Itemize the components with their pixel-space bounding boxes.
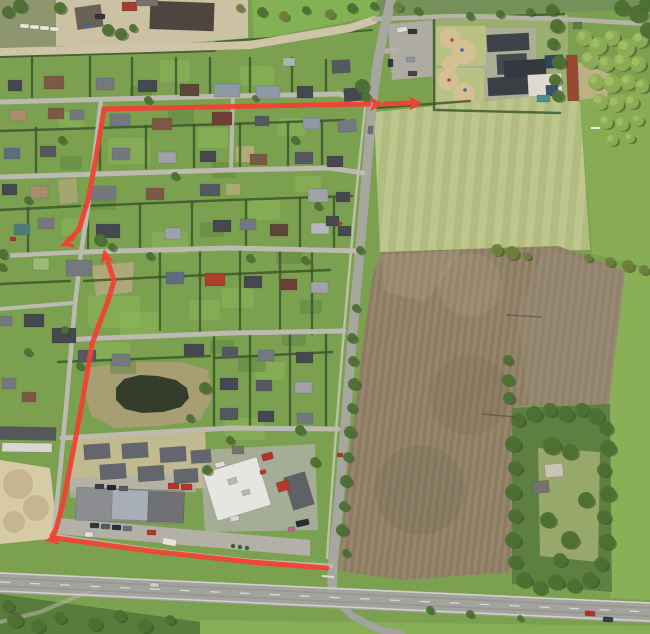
tree [138,619,152,633]
dealership-showroom [111,489,148,520]
tree [597,463,611,477]
school-sports-field [374,94,590,252]
tree [54,2,66,14]
sand-pile-2 [23,495,49,521]
bush [238,545,242,549]
house [311,282,328,293]
aerial-map-canvas [0,0,650,634]
sand-pile-3 [3,511,25,533]
tree [279,11,289,21]
vehicle [585,611,595,617]
tree [505,484,521,500]
tree [252,95,258,101]
dealership-dark-wing [147,491,184,522]
tree [24,348,32,356]
tree [505,532,521,548]
vehicle [40,26,49,30]
tree-highlight [607,135,613,141]
tree [325,9,335,19]
house [220,378,238,390]
tree-highlight [615,55,624,64]
house [24,314,44,327]
tree [347,403,357,413]
tree [597,510,611,524]
tree [540,512,556,528]
tree [393,2,403,12]
tree [361,92,371,102]
play-equipment [447,78,451,82]
tree [165,615,175,625]
farm-red-building [122,2,137,11]
house [256,380,272,391]
tree [426,606,434,614]
house [40,146,56,157]
tree [344,426,356,438]
house [297,86,313,98]
tree [2,600,14,612]
school-building-4 [488,76,529,96]
tree [548,574,564,590]
house [295,152,313,164]
tree [342,549,350,557]
play-equipment [460,48,464,52]
house [2,184,17,195]
tree [526,406,542,422]
house [296,352,313,363]
tree [546,4,558,16]
tree [336,524,348,536]
cabin [84,443,111,460]
house [327,156,343,167]
tree-highlight [583,53,592,62]
vehicle [95,14,105,19]
vehicle [119,486,128,491]
house [166,272,184,284]
tree [301,256,309,264]
lawn-patch [240,66,274,86]
house [152,118,172,130]
tree [549,74,561,86]
tree [562,444,578,460]
tree [639,265,649,275]
goal-posts [591,127,600,129]
tree-highlight [633,115,639,121]
tree [355,79,369,93]
vehicle [50,27,59,31]
tree-highlight [605,77,614,86]
tree [129,24,137,32]
tree [582,572,598,588]
bush [245,546,249,550]
tree [466,12,474,20]
house [44,76,64,89]
tree [502,374,514,386]
barn-large [150,1,215,31]
house [213,220,231,232]
vehicle [107,485,116,490]
tree [561,531,579,549]
house [336,192,350,202]
house [146,188,164,200]
tree [505,436,521,452]
house [258,411,274,422]
lawn-patch [120,312,162,336]
house [8,80,22,91]
tree [599,421,613,435]
tree [343,452,353,462]
warehouse-light [2,443,52,453]
tree [246,254,254,262]
house [4,148,20,159]
cabin [174,468,199,484]
tree [146,252,154,260]
house [308,189,328,202]
house [165,228,181,239]
tree [508,461,522,475]
warehouse-dark [0,427,56,441]
house [2,378,16,389]
house [297,413,313,424]
farm-shed [136,0,158,6]
house [281,279,297,290]
tree [552,90,564,102]
lawn-patch [60,156,82,170]
tree [543,437,561,455]
tree-highlight [626,96,633,103]
cabin [191,449,212,463]
tree [102,24,114,36]
house-red-roof [205,273,225,286]
house [22,392,36,402]
tree [491,244,503,256]
tree [186,414,194,422]
route-school-entry [385,103,410,104]
house [30,186,48,198]
house [250,154,267,165]
tree [503,355,513,365]
tree [370,2,378,10]
tree [523,252,531,260]
vehicle [603,617,613,623]
tree [348,378,360,390]
school-building-1 [487,33,530,52]
tree [339,501,349,511]
tree [584,254,592,262]
tree [2,6,14,18]
vehicle [112,525,121,530]
house [200,184,220,196]
vehicle [337,222,342,225]
tree [543,403,557,417]
tree [508,509,522,523]
vehicle [388,59,393,67]
tree [599,534,615,550]
vehicle [95,484,104,489]
tree [552,55,566,69]
house [256,86,280,99]
tree [257,7,267,17]
tree [236,4,244,12]
tree [291,136,299,144]
house [214,84,240,97]
tree [547,38,559,50]
tree [314,202,322,210]
tree [575,403,589,417]
tree-highlight [616,118,623,125]
vehicle [101,524,110,529]
tree [600,440,616,456]
tree [58,136,66,144]
house [38,218,54,229]
house [332,60,351,74]
school-green-shed [573,22,582,29]
vehicle [168,483,179,489]
sand-pile-1 [3,469,33,499]
tree [340,475,352,487]
vehicle [408,71,417,76]
lawn-patch [198,128,228,148]
house [184,344,204,356]
house [66,260,92,276]
tree [505,246,519,260]
house [70,110,84,120]
garden-dirt-2 [226,184,240,195]
cabin [100,463,127,480]
house [222,347,238,358]
parcel-building-1 [544,463,563,478]
tree [558,406,574,422]
tree [600,486,616,502]
cabin [122,442,149,459]
tree [144,96,152,104]
house [258,350,274,361]
tree [171,172,179,180]
tree [76,362,84,370]
tree [516,572,532,588]
vehicle [123,526,132,531]
tree [533,581,547,595]
tree [588,408,604,424]
tree [511,413,525,427]
tree [347,333,357,343]
vehicle [408,29,417,34]
tree [614,0,630,16]
house [303,118,320,129]
tree-highlight [626,134,631,139]
tree [226,436,234,444]
tree [550,19,564,33]
tree-highlight [590,76,598,84]
vehicle [181,484,192,490]
dirt-lot-2 [58,178,78,204]
house [33,258,49,270]
vehicle [10,237,16,241]
house [212,112,232,125]
tree-highlight [600,116,607,123]
tree [7,612,23,628]
tree-highlight [636,80,643,87]
house [110,114,130,126]
tree [553,553,567,567]
play-equipment [450,38,454,42]
aerial-photo [0,0,650,634]
bush [231,544,235,548]
tree [496,10,504,18]
tree [115,28,127,40]
tree [567,579,581,593]
tree-highlight [634,34,642,42]
tree-highlight [594,96,602,104]
intersection-mark [322,576,334,577]
house [10,110,26,121]
vehicle [85,532,93,537]
tree [605,257,615,267]
house [338,120,357,133]
field-dark-blob-1 [375,445,465,535]
tree [24,196,32,204]
vehicle [368,126,374,134]
tree-highlight [622,76,630,84]
tree-highlight [610,98,618,106]
vehicle [86,24,90,28]
house [112,148,130,160]
house [138,80,157,92]
shed [232,446,244,454]
house [240,219,256,230]
vehicle [147,530,156,535]
house [14,224,30,235]
tree-highlight [591,39,600,48]
field-dark-blob-2 [430,355,510,435]
tree [352,304,360,312]
tree-highlight [606,32,614,40]
shed [283,58,295,66]
tree [202,465,212,475]
tree [61,326,69,334]
tree [108,243,116,251]
field-light-blob [438,253,502,317]
vehicle [20,24,29,28]
tree [466,610,474,618]
tree-highlight [578,32,586,40]
school-teal-patch [537,95,550,102]
tree [526,8,534,16]
house [200,151,216,162]
school-red-building [566,55,579,101]
tree-highlight [619,41,628,50]
tree [578,492,594,508]
house [180,84,199,96]
tree [594,557,608,571]
tree [414,7,422,15]
tree [356,246,364,254]
house [96,78,114,90]
vehicle [90,523,99,528]
house [244,276,262,288]
lawn-patch [222,288,254,308]
vehicle [150,583,159,587]
parcel-building-2 [533,480,550,493]
vehicle [406,57,415,62]
house [220,408,238,420]
tree [199,382,211,394]
house [295,382,312,393]
house [158,152,176,163]
tree [295,425,305,435]
tree [622,260,634,272]
house [48,108,64,119]
tree [88,617,102,631]
tree [54,612,66,624]
playground-sand-3 [442,56,458,72]
tree [302,6,310,14]
tree [347,3,357,13]
house [338,226,351,236]
tree [310,457,320,467]
house [112,354,130,366]
house [90,186,116,200]
tree [94,234,106,246]
lawn-patch [190,300,220,320]
tree [31,619,45,633]
lawn-patch [248,200,280,220]
tree-highlight [600,58,608,66]
vehicle [337,453,343,457]
play-equipment [463,88,467,92]
tree [508,555,522,569]
tree [348,356,358,366]
tree [503,392,515,404]
vehicle [30,25,39,29]
house [0,316,12,326]
tree [114,610,126,622]
cabin [138,465,165,482]
tree [517,615,523,621]
cabin [160,446,187,463]
house [270,224,288,236]
house [255,116,269,126]
tree-highlight [632,58,640,66]
